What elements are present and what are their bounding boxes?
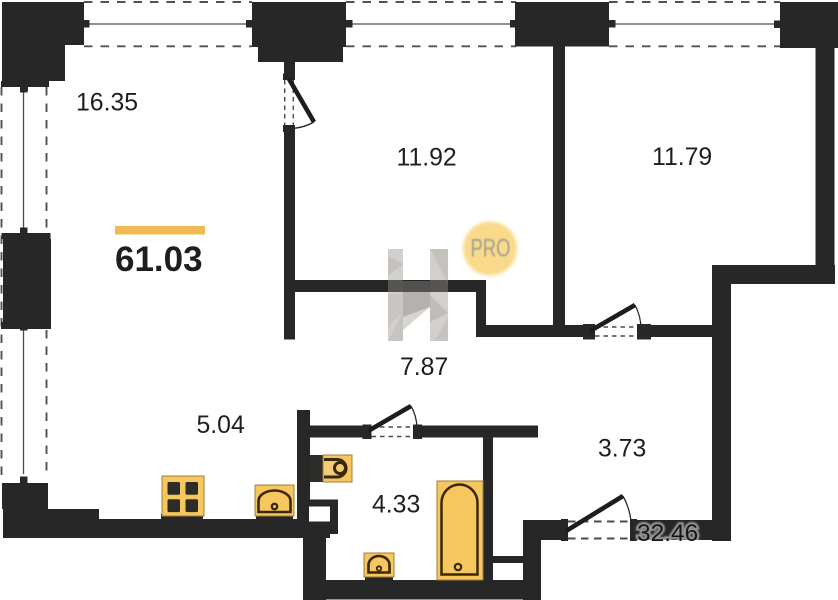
svg-text:3.73: 3.73 — [598, 436, 646, 463]
svg-text:PRO: PRO — [470, 234, 510, 262]
svg-text:4.33: 4.33 — [372, 492, 420, 519]
svg-text:5.04: 5.04 — [197, 412, 245, 439]
svg-text:7.87: 7.87 — [400, 354, 448, 381]
svg-text:11.79: 11.79 — [652, 144, 712, 171]
svg-text:16.35: 16.35 — [76, 90, 138, 117]
svg-text:32.46: 32.46 — [637, 520, 698, 547]
svg-text:61.03: 61.03 — [115, 240, 203, 279]
svg-text:11.92: 11.92 — [397, 145, 457, 172]
